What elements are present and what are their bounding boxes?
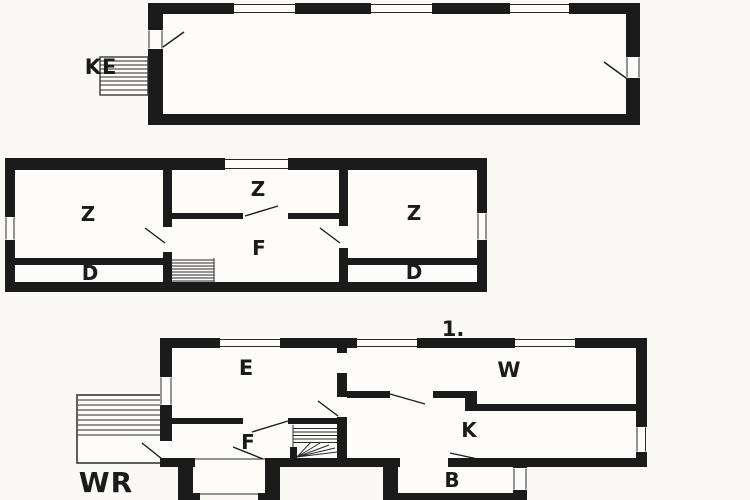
attic-room-interior (163, 14, 626, 114)
floor-plan-drawing: KE Z Z Z F D D 1. E W F K B (0, 0, 750, 500)
room-label-d-right: D (406, 260, 423, 284)
room-label-z-middle: Z (251, 177, 266, 201)
room-label-z-left: Z (81, 202, 96, 226)
attic-entrance-stair-label: KE (85, 55, 118, 79)
upper-floor-plan: Z Z Z F D D (5, 158, 487, 292)
terrace-label: WR (79, 466, 133, 499)
room-label-z-right: Z (407, 201, 422, 225)
attic-floor-plan: KE (85, 3, 640, 125)
room-label-d-left: D (82, 261, 99, 285)
room-label-f-upper: F (252, 236, 266, 260)
room-label-e: E (239, 356, 253, 380)
room-label-k: K (461, 418, 478, 442)
room-label-b: B (444, 468, 459, 492)
floor-number-label: 1. (442, 317, 465, 341)
porch-interior (193, 465, 265, 495)
room-label-f-ground: F (241, 430, 255, 454)
winder-stair-newel-post (290, 447, 297, 458)
room-label-w: W (497, 358, 520, 382)
